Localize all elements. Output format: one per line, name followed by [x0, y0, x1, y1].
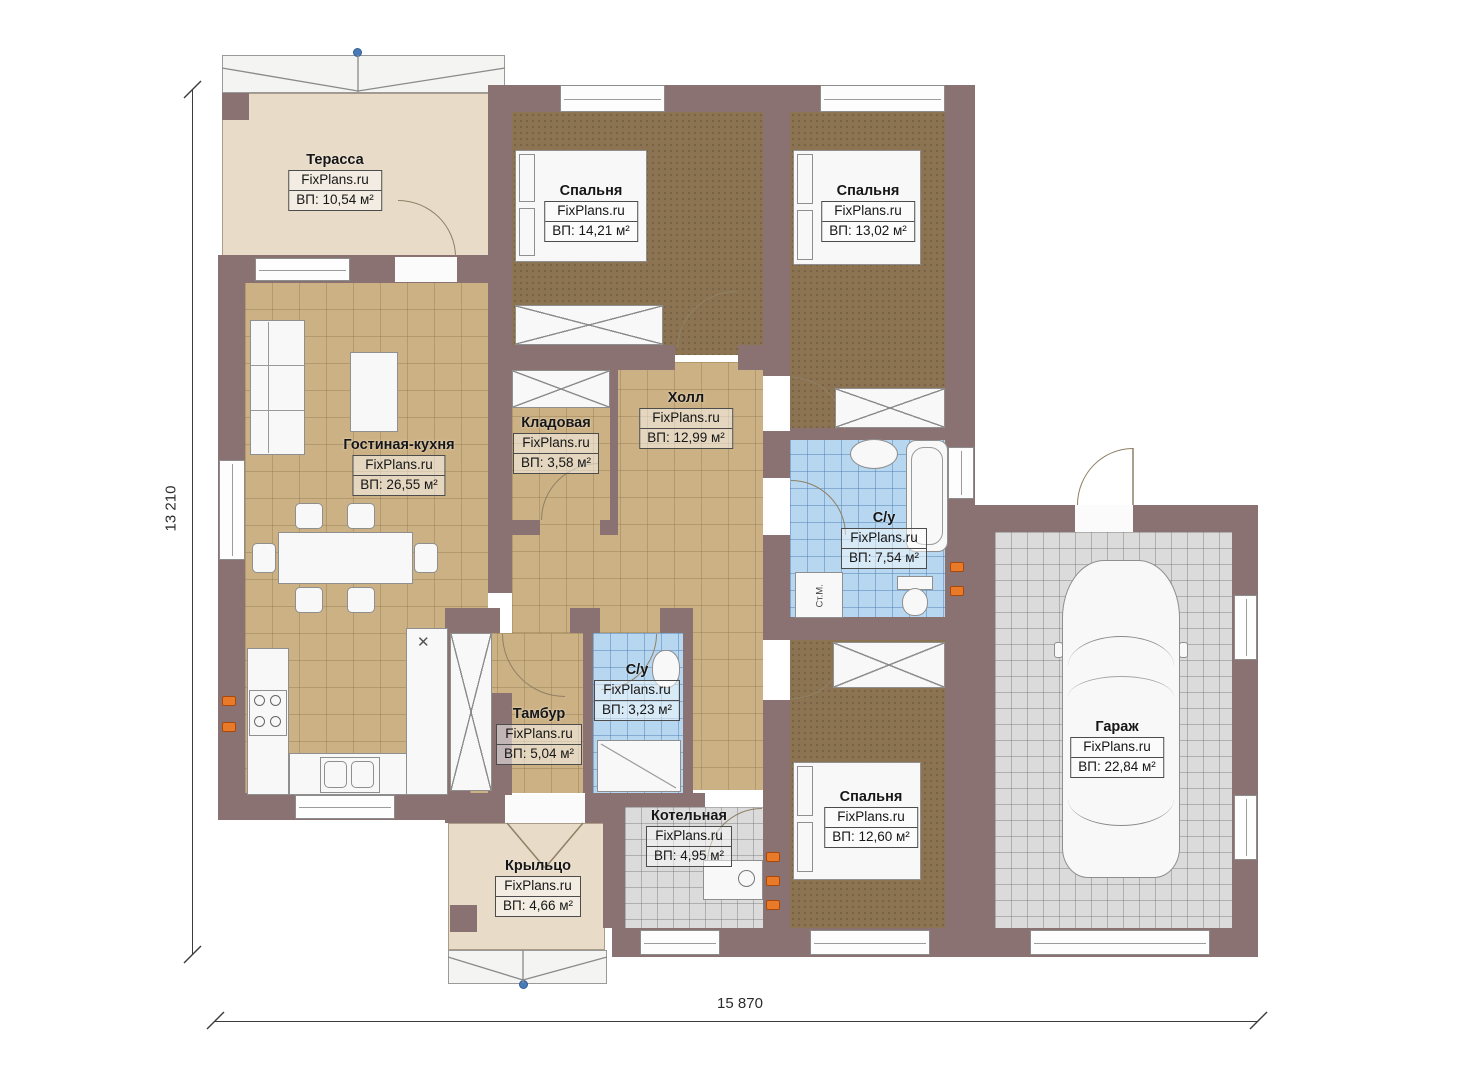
watermark: FixPlans.ru [514, 434, 598, 454]
window-living-terrace [255, 258, 350, 281]
wardrobe-storage [512, 370, 610, 408]
room-area: ВП: 26,55 м² [353, 476, 445, 495]
room-label-bedroom1: Спальня FixPlans.ru ВП: 14,21 м² [544, 183, 638, 242]
wall-storage-bottom-right [600, 520, 618, 535]
room-area: ВП: 13,02 м² [822, 222, 914, 241]
room-info-box: FixPlans.ru ВП: 26,55 м² [352, 455, 446, 496]
watermark: FixPlans.ru [647, 827, 731, 847]
stove-burner [270, 716, 281, 727]
room-info-box: FixPlans.ru ВП: 7,54 м² [841, 528, 927, 569]
wall-hall-east-b [763, 431, 790, 478]
door-opening-terrace [395, 257, 457, 282]
stove-burner [270, 695, 281, 706]
wall-hall-east-d [763, 700, 790, 930]
room-label-terrace: Терасса FixPlans.ru ВП: 10,54 м² [288, 152, 382, 211]
room-label-boiler: Котельная FixPlans.ru ВП: 4,95 м² [646, 808, 732, 867]
room-area: ВП: 4,66 м² [496, 897, 580, 916]
car-mirror [1179, 642, 1188, 658]
room-area: ВП: 14,21 м² [545, 222, 637, 241]
watermark: FixPlans.ru [825, 808, 917, 828]
shower-tray [597, 740, 681, 792]
room-info-box: FixPlans.ru ВП: 22,84 м² [1070, 737, 1164, 778]
window-garage-1 [1234, 595, 1257, 660]
wall-hall-east-c [763, 535, 790, 640]
room-label-living-kitchen: Гостиная-кухня FixPlans.ru ВП: 26,55 м² [343, 437, 454, 496]
room-info-box: FixPlans.ru ВП: 4,95 м² [646, 826, 732, 867]
terrace-roof-overhang [222, 55, 505, 93]
outlet-icon [766, 876, 780, 886]
room-info-box: FixPlans.ru ВП: 3,58 м² [513, 433, 599, 474]
terrace-post [222, 93, 249, 120]
pillow [797, 154, 813, 204]
room-label-hall: Холл FixPlans.ru ВП: 12,99 м² [639, 390, 733, 449]
dimension-line-bottom [215, 1021, 1258, 1022]
car-mirror [1054, 642, 1063, 658]
room-info-box: FixPlans.ru ВП: 12,60 м² [824, 807, 918, 848]
porch-post [450, 905, 477, 932]
wardrobe-bedroom2 [835, 388, 945, 428]
chair [347, 503, 375, 529]
chair [252, 543, 276, 573]
room-name: Кладовая [513, 415, 599, 431]
boiler-circle [738, 870, 755, 887]
window-bedroom3 [810, 930, 930, 955]
toilet-bowl [902, 588, 928, 616]
garage-gate [1030, 930, 1210, 955]
watermark: FixPlans.ru [595, 681, 679, 701]
room-label-porch: Крыльцо FixPlans.ru ВП: 4,66 м² [495, 858, 581, 917]
pillow [797, 822, 813, 872]
room-name: Гостиная-кухня [343, 437, 454, 453]
room-area: ВП: 22,84 м² [1071, 758, 1163, 777]
watermark: FixPlans.ru [289, 171, 381, 191]
room-area: ВП: 3,23 м² [595, 701, 679, 720]
room-name: Гараж [1070, 719, 1164, 735]
room-label-storage: Кладовая FixPlans.ru ВП: 3,58 м² [513, 415, 599, 474]
wall-smallbath-right [683, 633, 693, 793]
watermark: FixPlans.ru [497, 725, 581, 745]
room-name: Терасса [288, 152, 382, 168]
room-area: ВП: 7,54 м² [842, 549, 926, 568]
wall-garage-right [1232, 532, 1258, 928]
bathroom-sink [850, 439, 898, 469]
outlet-icon [222, 696, 236, 706]
wall-vestibule-top-b [570, 608, 600, 633]
window-bedroom1 [560, 85, 665, 112]
sink-basin [324, 761, 347, 788]
closet-vestibule [450, 633, 492, 791]
wardrobe-bedroom1 [515, 305, 663, 345]
room-info-box: FixPlans.ru ВП: 4,66 м² [495, 876, 581, 917]
watermark: FixPlans.ru [545, 202, 637, 222]
room-name: Спальня [824, 789, 918, 805]
room-area: ВП: 10,54 м² [289, 191, 381, 210]
room-name: Крыльцо [495, 858, 581, 874]
outlet-icon [950, 562, 964, 572]
chair [295, 587, 323, 613]
dimension-label-left: 13 210 [163, 486, 180, 532]
room-info-box: FixPlans.ru ВП: 3,23 м² [594, 680, 680, 721]
window-kitchen [295, 795, 395, 819]
room-info-box: FixPlans.ru ВП: 12,99 м² [639, 408, 733, 449]
chair [295, 503, 323, 529]
watermark: FixPlans.ru [353, 456, 445, 476]
room-label-small-bathroom: С/у FixPlans.ru ВП: 3,23 м² [594, 662, 680, 721]
room-area: ВП: 3,58 м² [514, 454, 598, 473]
room-label-main-bathroom: С/у FixPlans.ru ВП: 7,54 м² [841, 510, 927, 569]
room-info-box: FixPlans.ru ВП: 13,02 м² [821, 201, 915, 242]
wall-bathroom-bottom [790, 617, 945, 640]
room-area: ВП: 4,95 м² [647, 847, 731, 866]
outlet-icon [950, 586, 964, 596]
coffee-table [350, 352, 398, 432]
outlet-icon [766, 900, 780, 910]
room-info-box: FixPlans.ru ВП: 10,54 м² [288, 170, 382, 211]
porch-roof-overhang [448, 950, 607, 984]
door-opening-porch [505, 795, 585, 823]
window-bedroom2 [820, 85, 945, 112]
window-bathroom [948, 447, 974, 499]
room-name: Тамбур [496, 706, 582, 722]
room-info-box: FixPlans.ru ВП: 5,04 м² [496, 724, 582, 765]
chair [414, 543, 438, 573]
door-opening-garage [1075, 505, 1133, 532]
pillow [519, 154, 535, 202]
window-living-left [219, 460, 245, 560]
room-name: С/у [594, 662, 680, 678]
outlet-icon [222, 722, 236, 732]
sink-basin [351, 761, 374, 788]
watermark: FixPlans.ru [842, 529, 926, 549]
dining-table [278, 532, 413, 584]
wall-garage-top-left [945, 505, 1075, 532]
window-boiler [640, 930, 720, 955]
washing-machine-label: Ст.М. [815, 568, 826, 608]
watermark: FixPlans.ru [822, 202, 914, 222]
window-garage-2 [1234, 795, 1257, 860]
watermark: FixPlans.ru [1071, 738, 1163, 758]
hob-cross-icon: ✕ [417, 633, 430, 651]
wall-boiler-left [603, 823, 625, 928]
outlet-icon [766, 852, 780, 862]
wall-storage-bottom-left [488, 520, 540, 535]
pillow [797, 766, 813, 816]
chair [347, 587, 375, 613]
kitchen-tall-unit [406, 628, 448, 795]
room-label-bedroom2: Спальня FixPlans.ru ВП: 13,02 м² [821, 183, 915, 242]
room-name: Спальня [544, 183, 638, 199]
wall-vestibule-bottom-left [445, 793, 505, 823]
roof-ridge-marker [353, 48, 362, 57]
wall-vestibule-bath [583, 633, 593, 793]
wall-hall-east-a [763, 362, 790, 376]
dimension-label-bottom: 15 870 [695, 995, 785, 1012]
room-name: Холл [639, 390, 733, 406]
stove-burner [254, 695, 265, 706]
sofa-cushion-line [251, 365, 304, 366]
pillow [797, 210, 813, 260]
room-area: ВП: 12,99 м² [640, 429, 732, 448]
wall-vestibule-top-a [445, 608, 500, 633]
sofa [250, 320, 305, 455]
room-label-bedroom3: Спальня FixPlans.ru ВП: 12,60 м² [824, 789, 918, 848]
stove-burner [254, 716, 265, 727]
watermark: FixPlans.ru [640, 409, 732, 429]
room-name: Спальня [821, 183, 915, 199]
wall-bedroom1-bottom-left [512, 345, 675, 370]
wall-storage-right [610, 362, 618, 520]
roof-ridge-marker [519, 980, 528, 989]
room-area: ВП: 5,04 м² [497, 745, 581, 764]
wall-garage-top-right [1133, 505, 1258, 532]
floor-plan-canvas: ✕ Ст.М. Терасса FixPlans.ru ВП: 10,54 м²… [0, 0, 1474, 1080]
room-label-garage: Гараж FixPlans.ru ВП: 22,84 м² [1070, 719, 1164, 778]
door-arc-garage-entry [1077, 448, 1133, 505]
room-area: ВП: 12,60 м² [825, 828, 917, 847]
wardrobe-bedroom3 [833, 642, 945, 688]
wall-bedroom-divider [763, 112, 790, 362]
room-info-box: FixPlans.ru ВП: 14,21 м² [544, 201, 638, 242]
room-name: С/у [841, 510, 927, 526]
watermark: FixPlans.ru [496, 877, 580, 897]
sofa-backrest-line [268, 322, 269, 453]
room-name: Котельная [646, 808, 732, 824]
room-label-vestibule: Тамбур FixPlans.ru ВП: 5,04 м² [496, 706, 582, 765]
pillow [519, 208, 535, 256]
wall-vestibule-top-c [660, 608, 693, 633]
dimension-line-left [192, 90, 193, 955]
sofa-cushion-line [251, 410, 304, 411]
